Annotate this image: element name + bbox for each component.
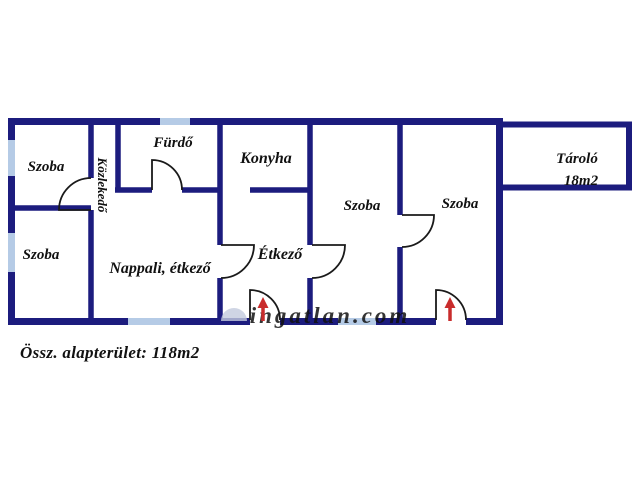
window	[128, 318, 170, 325]
floor-plan-image: ingatlan.comSzobaKözlekedőFürdőKonyhaSzo…	[0, 0, 640, 480]
room-label: Étkező	[257, 244, 303, 263]
room-label: Szoba	[442, 196, 479, 212]
room-label: 18m2	[564, 173, 599, 189]
window	[8, 233, 15, 272]
room-label: Szoba	[23, 247, 60, 263]
room-label: Szoba	[28, 159, 65, 175]
room-label: Konyha	[239, 150, 292, 167]
door-arc	[59, 178, 91, 210]
door-arc	[221, 245, 254, 278]
door-arc	[402, 215, 434, 247]
watermark: ingatlan.com	[250, 303, 411, 328]
room-label: Tároló	[556, 151, 598, 167]
window	[160, 118, 190, 125]
room-label: Nappali, étkező	[108, 260, 211, 277]
window	[8, 140, 15, 176]
room-label: Fürdő	[152, 135, 194, 151]
watermark-shape	[221, 308, 247, 321]
room-label: Közlekedő	[95, 157, 110, 214]
floorplan-svg: ingatlan.comSzobaKözlekedőFürdőKonyhaSzo…	[0, 0, 640, 480]
room-label: Szoba	[344, 198, 381, 214]
door-arc	[152, 160, 182, 190]
door-arc	[312, 245, 345, 278]
total-area-label: Össz. alapterület: 118m2	[20, 343, 200, 363]
entrance-arrow-icon	[445, 297, 456, 308]
